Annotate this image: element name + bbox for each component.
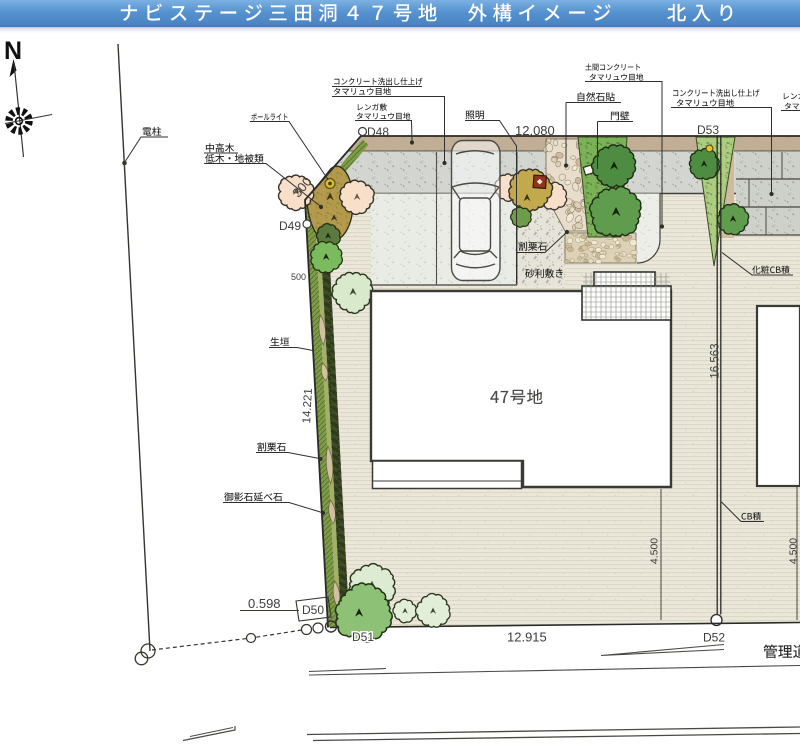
svg-text:12.080: 12.080 <box>515 123 555 138</box>
svg-text:D51: D51 <box>352 630 374 644</box>
svg-text:4.500: 4.500 <box>788 538 800 564</box>
svg-text:D52: D52 <box>703 631 725 645</box>
svg-text:16.563: 16.563 <box>710 343 722 378</box>
svg-text:0.598: 0.598 <box>248 596 281 611</box>
svg-text:D49: D49 <box>279 219 301 233</box>
svg-text:D50: D50 <box>302 603 324 617</box>
svg-text:D48: D48 <box>367 125 389 139</box>
svg-text:500: 500 <box>291 272 306 282</box>
svg-text:4.500: 4.500 <box>649 538 661 564</box>
svg-text:14.221: 14.221 <box>301 388 315 424</box>
svg-text:D53: D53 <box>697 123 719 137</box>
svg-text:12.915: 12.915 <box>507 630 547 645</box>
svg-text:N: N <box>4 37 22 65</box>
